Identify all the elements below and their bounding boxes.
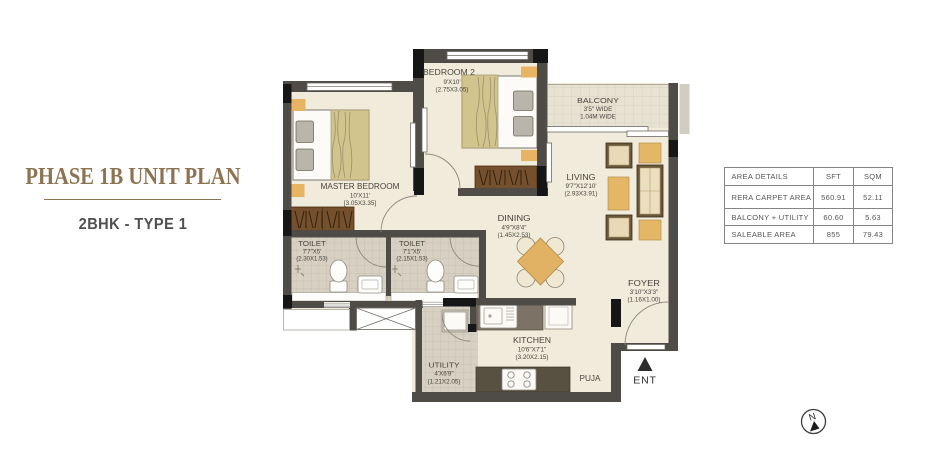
svg-text:7'1"X5': 7'1"X5' xyxy=(403,250,421,256)
svg-text:LIVING: LIVING xyxy=(567,173,596,182)
svg-text:BEDROOM 2: BEDROOM 2 xyxy=(423,68,476,77)
svg-text:(1.21X2.05): (1.21X2.05) xyxy=(428,379,461,386)
svg-text:4'9"X8'4": 4'9"X8'4" xyxy=(501,225,526,232)
svg-text:9'7"X12'10': 9'7"X12'10' xyxy=(565,183,596,190)
svg-text:9'X10': 9'X10' xyxy=(443,79,460,86)
svg-text:3'10"X3'3": 3'10"X3'3" xyxy=(630,289,659,296)
svg-text:N: N xyxy=(807,411,817,424)
svg-text:BALCONY: BALCONY xyxy=(577,96,619,105)
svg-text:[3.05X3.35]: [3.05X3.35] xyxy=(344,200,376,207)
svg-text:10'6"X7'1": 10'6"X7'1" xyxy=(518,347,547,354)
svg-text:(1.16X1.00): (1.16X1.00) xyxy=(628,297,661,304)
svg-text:(3.20X2.15): (3.20X2.15) xyxy=(516,354,549,361)
svg-text:(1.45X2.53): (1.45X2.53) xyxy=(498,232,531,239)
svg-text:UTILITY: UTILITY xyxy=(429,361,460,370)
svg-text:PUJA: PUJA xyxy=(580,374,602,383)
svg-text:(2.30X1.53): (2.30X1.53) xyxy=(296,257,327,263)
svg-text:7'7"X5': 7'7"X5' xyxy=(303,250,321,256)
svg-text:1.04M WIDE: 1.04M WIDE xyxy=(580,114,616,121)
svg-text:DINING: DINING xyxy=(498,214,531,223)
svg-text:KITCHEN: KITCHEN xyxy=(513,336,551,345)
svg-text:(2.75X3.05): (2.75X3.05) xyxy=(436,87,469,94)
svg-text:TOILET: TOILET xyxy=(298,239,326,248)
svg-text:MASTER BEDROOM: MASTER BEDROOM xyxy=(321,182,400,191)
svg-text:(2.15X1.53): (2.15X1.53) xyxy=(396,257,427,263)
svg-text:3'5" WIDE: 3'5" WIDE xyxy=(584,106,613,113)
svg-text:TOILET: TOILET xyxy=(399,239,425,248)
svg-text:(2.93X3.91): (2.93X3.91) xyxy=(565,191,598,198)
svg-text:FOYER: FOYER xyxy=(628,279,660,288)
svg-text:ENT: ENT xyxy=(633,375,656,387)
svg-text:10'X11': 10'X11' xyxy=(350,193,370,200)
svg-text:4'X6'9": 4'X6'9" xyxy=(434,371,453,378)
